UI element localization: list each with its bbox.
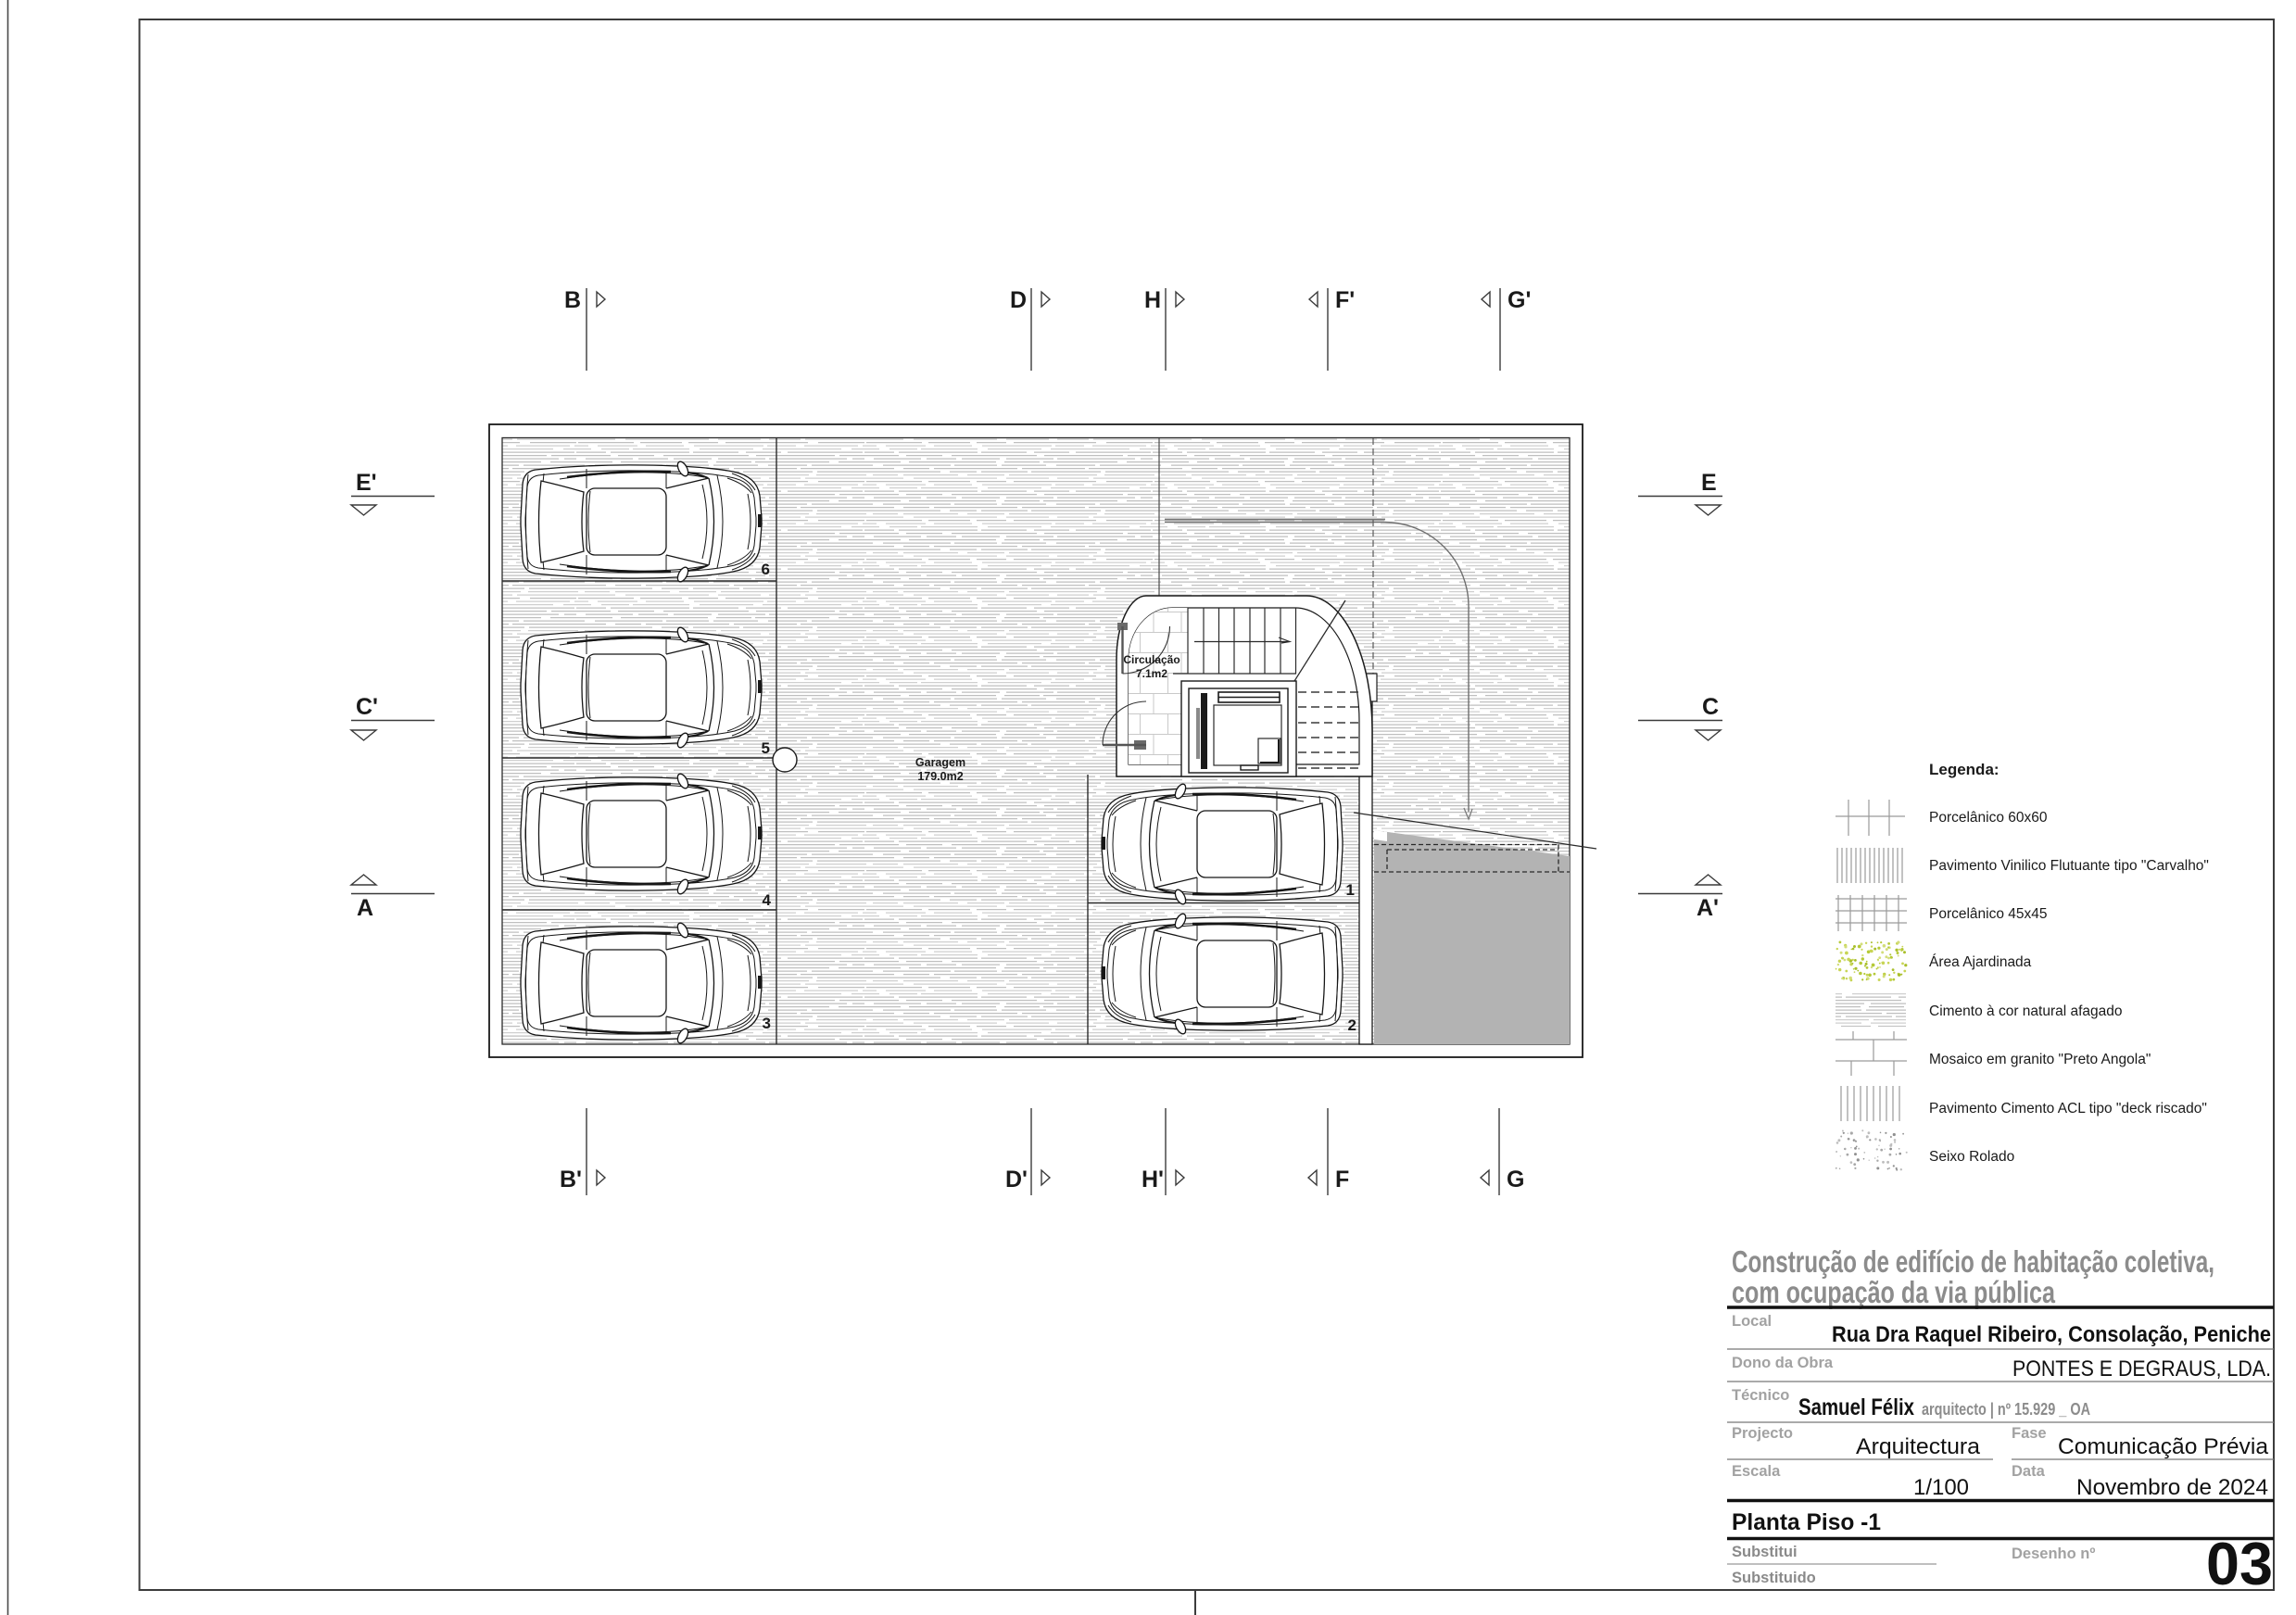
svg-text:6: 6 xyxy=(762,561,770,578)
svg-text:7.1m2: 7.1m2 xyxy=(1136,667,1167,680)
svg-text:1/100: 1/100 xyxy=(1913,1475,1969,1500)
svg-text:C': C' xyxy=(356,694,378,720)
svg-text:Circulação: Circulação xyxy=(1123,653,1180,666)
svg-text:com ocupação da via pública: com ocupação da via pública xyxy=(1732,1275,2055,1309)
svg-text:Área Ajardinada: Área Ajardinada xyxy=(1929,954,2032,970)
svg-text:Mosaico em granito "Preto Ango: Mosaico em granito "Preto Angola" xyxy=(1929,1052,2151,1067)
svg-text:Fase: Fase xyxy=(2012,1425,2047,1442)
svg-text:Pavimento Cimento ACL tipo "de: Pavimento Cimento ACL tipo "deck riscado… xyxy=(1929,1101,2207,1117)
svg-text:Substitui: Substitui xyxy=(1732,1544,1798,1560)
svg-text:Novembro de 2024: Novembro de 2024 xyxy=(2076,1475,2268,1500)
svg-text:Desenho nº: Desenho nº xyxy=(2012,1546,2095,1562)
svg-text:Samuel Félix: Samuel Félix xyxy=(1798,1394,1914,1420)
svg-text:B: B xyxy=(564,287,581,313)
svg-text:5: 5 xyxy=(762,739,770,757)
svg-text:1: 1 xyxy=(1346,881,1355,899)
svg-text:E: E xyxy=(1701,470,1717,496)
svg-text:Legenda:: Legenda: xyxy=(1929,761,2000,778)
svg-text:Garagem: Garagem xyxy=(915,756,965,769)
svg-text:G: G xyxy=(1507,1167,1524,1192)
svg-text:3: 3 xyxy=(763,1015,771,1032)
svg-text:H: H xyxy=(1144,287,1161,313)
svg-text:E': E' xyxy=(356,470,377,496)
svg-text:Cimento à cor natural afagado: Cimento à cor natural afagado xyxy=(1929,1003,2123,1019)
svg-text:C: C xyxy=(1702,694,1719,720)
svg-text:Porcelânico 60x60: Porcelânico 60x60 xyxy=(1929,810,2048,826)
svg-text:Porcelânico 45x45: Porcelânico 45x45 xyxy=(1929,906,2048,922)
svg-text:G': G' xyxy=(1508,287,1531,313)
svg-text:F': F' xyxy=(1335,287,1355,313)
svg-text:2: 2 xyxy=(1348,1016,1356,1034)
svg-text:D: D xyxy=(1010,287,1027,313)
svg-text:Escala: Escala xyxy=(1732,1463,1781,1480)
svg-text:arquitecto | nº 15.929 _ OA: arquitecto | nº 15.929 _ OA xyxy=(1922,1400,2090,1419)
svg-text:Planta Piso -1: Planta Piso -1 xyxy=(1732,1509,1881,1535)
svg-text:Dono da Obra: Dono da Obra xyxy=(1732,1355,1834,1371)
svg-text:Construção de edifício de habi: Construção de edifício de habitação cole… xyxy=(1732,1244,2214,1279)
svg-text:Projecto: Projecto xyxy=(1732,1425,1793,1442)
svg-text:Comunicação Prévia: Comunicação Prévia xyxy=(2058,1434,2269,1459)
svg-text:03: 03 xyxy=(2206,1530,2273,1597)
svg-text:4: 4 xyxy=(763,891,772,909)
svg-text:H': H' xyxy=(1142,1167,1164,1192)
svg-text:A': A' xyxy=(1697,895,1719,921)
svg-text:Rua Dra Raquel Ribeiro, Consol: Rua Dra Raquel Ribeiro, Consolação, Peni… xyxy=(1832,1322,2271,1347)
svg-text:Técnico: Técnico xyxy=(1732,1387,1789,1404)
svg-text:D': D' xyxy=(1005,1167,1028,1192)
svg-text:PONTES E DEGRAUS, LDA.: PONTES E DEGRAUS, LDA. xyxy=(2012,1356,2271,1382)
svg-text:A: A xyxy=(357,895,373,921)
svg-text:Pavimento Vinilico Flutuante t: Pavimento Vinilico Flutuante tipo "Carva… xyxy=(1929,858,2209,874)
svg-text:Substituido: Substituido xyxy=(1732,1570,1816,1586)
svg-text:Seixo Rolado: Seixo Rolado xyxy=(1929,1149,2014,1165)
svg-text:179.0m2: 179.0m2 xyxy=(917,770,963,783)
svg-text:Data: Data xyxy=(2012,1463,2046,1480)
svg-text:Arquitectura: Arquitectura xyxy=(1856,1434,1981,1459)
svg-text:F: F xyxy=(1335,1167,1349,1192)
svg-text:B': B' xyxy=(560,1167,582,1192)
svg-text:Local: Local xyxy=(1732,1313,1772,1330)
